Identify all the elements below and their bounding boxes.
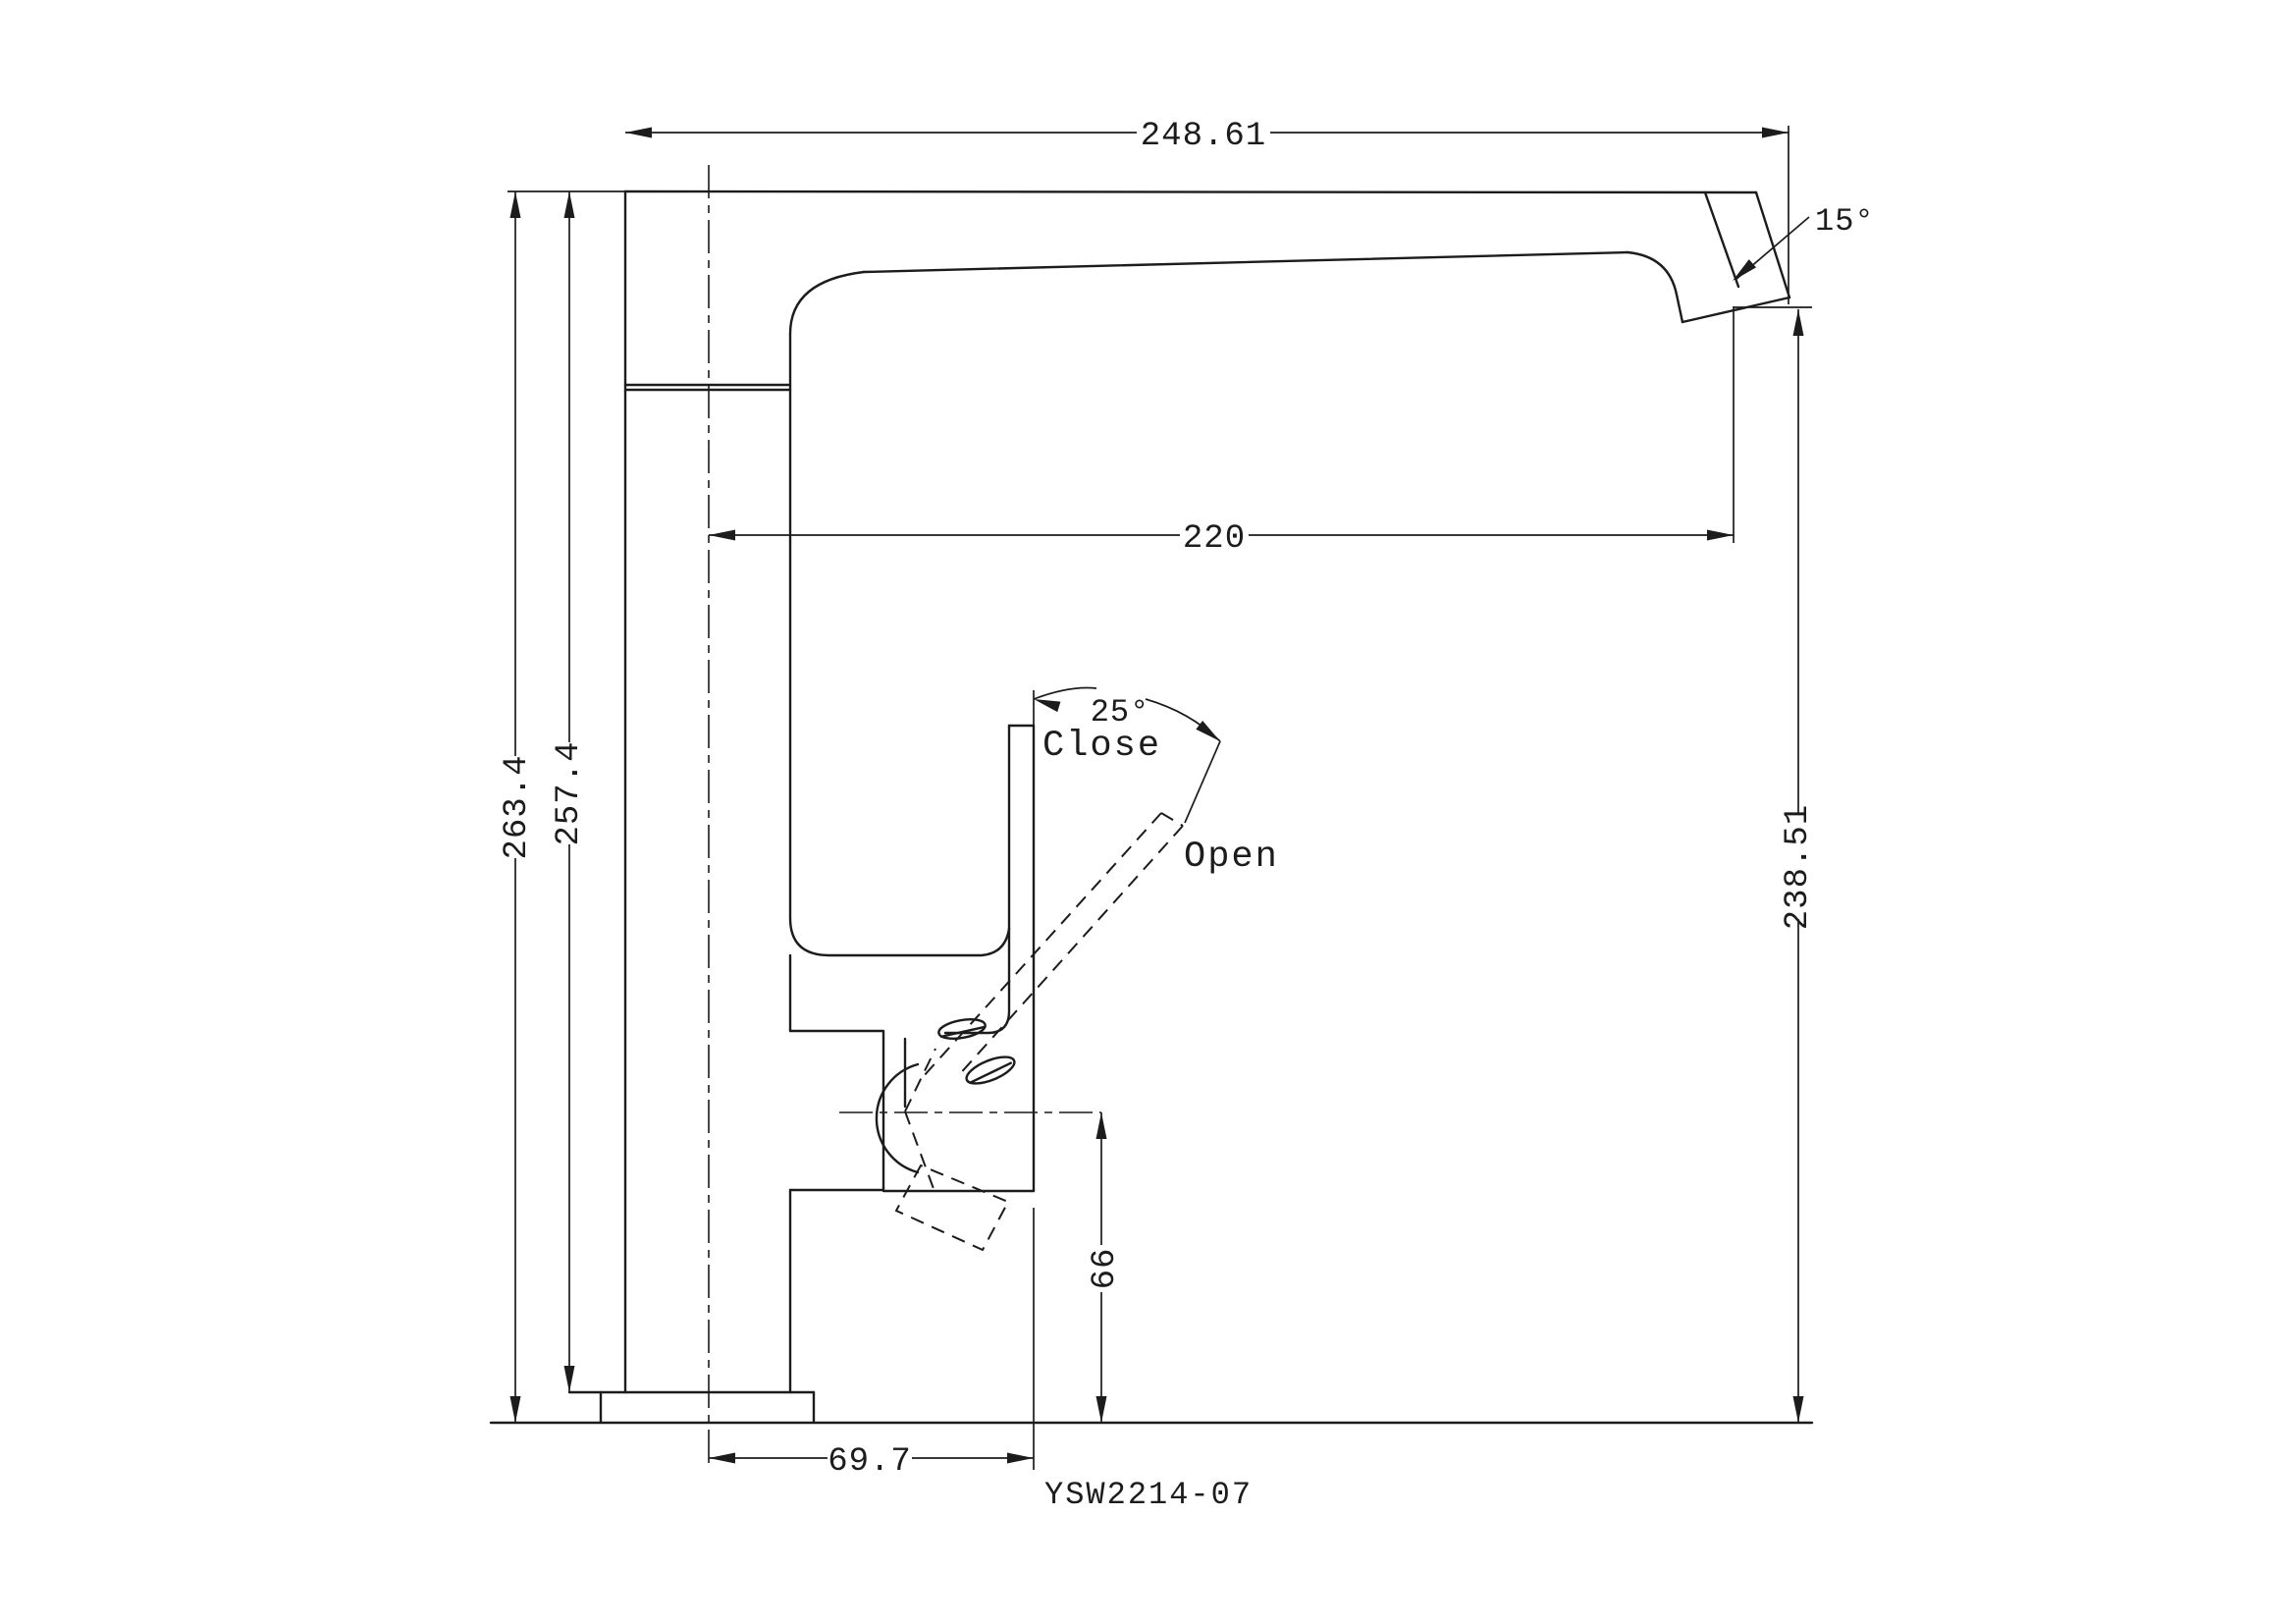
spout-tip-drop xyxy=(1628,252,1682,322)
dim-tip-angle-label: 15° xyxy=(1815,203,1875,240)
dimension-arrowhead xyxy=(709,1453,735,1464)
spout-tip-bottom-edge xyxy=(1682,298,1789,322)
valve-pivot-upper-dash xyxy=(905,1049,935,1111)
dimension-arrowhead xyxy=(510,191,521,218)
dimension-lines xyxy=(507,126,1812,1470)
lever-clip-upper xyxy=(937,1016,987,1042)
dimension-arrowhead xyxy=(625,128,652,138)
dimension-arrowhead xyxy=(1707,530,1734,541)
open-handle-base xyxy=(896,1165,1008,1250)
dimension-arrowhead xyxy=(510,1396,521,1423)
dimension-arrowhead xyxy=(709,530,735,541)
drawing-canvas: 248.61 263.4 257.4 220 238.51 66 69.7 15… xyxy=(0,0,2296,1624)
handle-close-label: Close xyxy=(1042,726,1161,767)
dimension-arrowhead xyxy=(1762,128,1789,138)
open-handle-top-edge xyxy=(1161,813,1183,826)
valve-pivot-lower-dash xyxy=(905,1111,935,1194)
dimension-arrowhead xyxy=(1032,694,1060,712)
body-ledge xyxy=(790,918,1009,955)
dimension-arrowheads xyxy=(510,128,1804,1464)
spout-underside xyxy=(864,252,1628,272)
dimension-arrowhead xyxy=(1793,309,1804,336)
dimension-arrowhead xyxy=(1096,1396,1107,1423)
dimension-arrowhead xyxy=(1096,1112,1107,1139)
spout-underside-curve xyxy=(790,272,864,334)
spout-top-edge xyxy=(625,191,1756,192)
dimension-arrowhead xyxy=(564,1366,575,1392)
spout-tip-face xyxy=(1756,192,1789,298)
handle-open-label: Open xyxy=(1184,837,1279,878)
dimension-arrowhead xyxy=(1007,1453,1034,1464)
dim-handle-height-label: 66 xyxy=(1087,1248,1124,1290)
valve-housing xyxy=(790,1031,883,1190)
dim-height-above-base-label: 257.4 xyxy=(551,740,588,845)
open-handle-right-edge xyxy=(957,826,1183,1077)
dim-spout-reach-label: 220 xyxy=(1183,520,1246,558)
dim-overall-height-label: 263.4 xyxy=(499,754,536,859)
dimension-arrowhead xyxy=(1793,1396,1804,1423)
dim-swing-leader xyxy=(1185,741,1220,823)
dimension-texts: 248.61 263.4 257.4 220 238.51 66 69.7 15… xyxy=(499,118,1875,1513)
lever-clip-lower xyxy=(963,1052,1018,1089)
open-handle-left-edge xyxy=(923,813,1161,1077)
centerlines xyxy=(709,165,1101,1470)
handle-closed-and-valve xyxy=(790,726,1034,1191)
spout-tip-crease xyxy=(1705,192,1738,287)
faucet-technical-drawing: 248.61 263.4 257.4 220 238.51 66 69.7 15… xyxy=(0,0,2296,1624)
dim-total-width-label: 248.61 xyxy=(1141,118,1266,155)
dim-handle-reach-label: 69.7 xyxy=(828,1443,912,1481)
dim-outlet-height-label: 238.51 xyxy=(1780,804,1817,930)
faucet-outline xyxy=(491,191,1812,1423)
model-number-label: YSW2214-07 xyxy=(1044,1477,1253,1513)
dimension-arrowhead xyxy=(564,191,575,218)
